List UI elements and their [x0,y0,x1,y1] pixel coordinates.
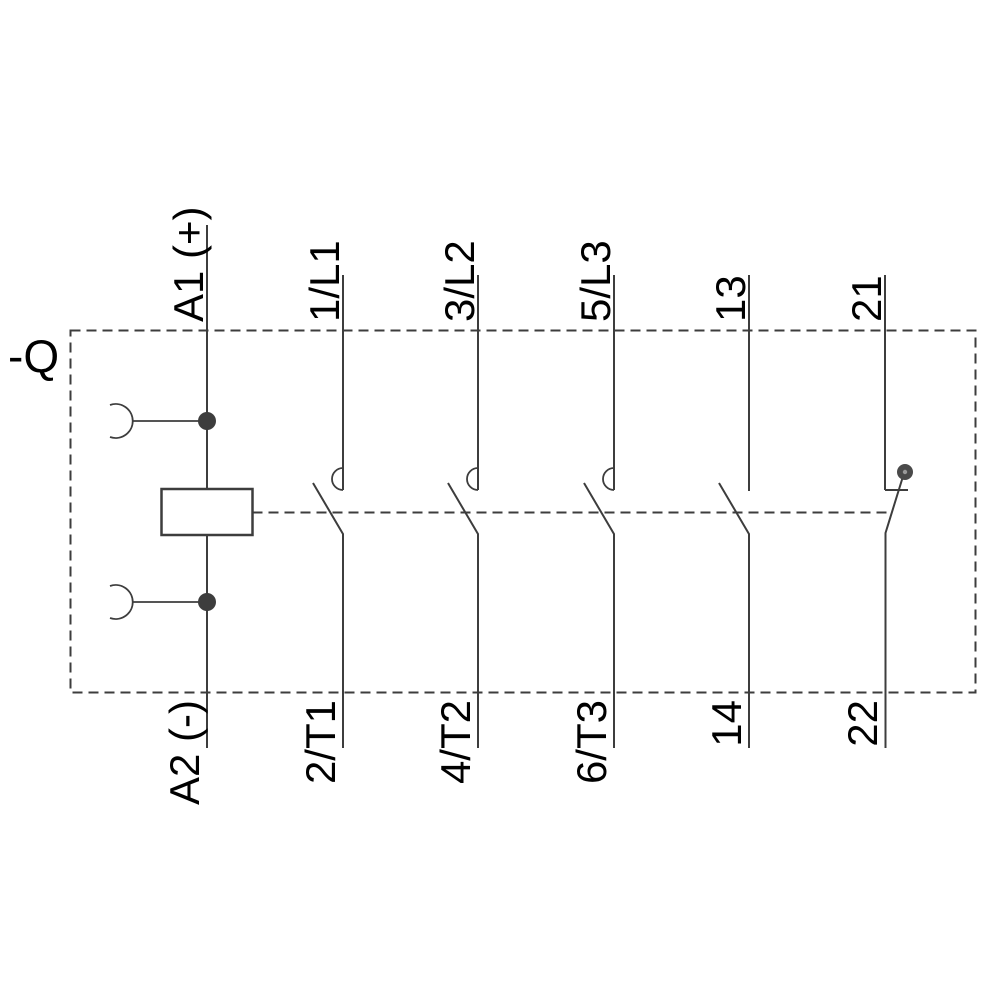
terminal-label-14: 14 [703,700,750,747]
terminal-label-21: 21 [843,275,890,322]
terminal-label-2t1: 2/T1 [297,700,344,784]
canvas-background [0,0,1000,1000]
nc-pivot [897,464,913,480]
terminal-label-5l3: 5/L3 [572,240,619,322]
junction-dot-a1 [198,412,216,430]
contactor-schematic: -Q A1 (+) 1/L1 3/L2 5/L3 13 21 A2 (-) 2/… [0,0,1000,1000]
junction-dot-a2 [198,593,216,611]
terminal-label-6t3: 6/T3 [568,700,615,784]
terminal-label-22: 22 [839,700,886,747]
terminal-label-1l1: 1/L1 [301,240,348,322]
terminal-label-3l2: 3/L2 [436,240,483,322]
nc-pivot-center-dot [903,470,907,474]
terminal-label-a1: A1 (+) [165,206,212,322]
terminal-label-13: 13 [707,275,754,322]
terminal-label-4t2: 4/T2 [432,700,479,784]
terminal-label-a2: A2 (-) [161,700,208,805]
device-label: -Q [8,330,59,382]
